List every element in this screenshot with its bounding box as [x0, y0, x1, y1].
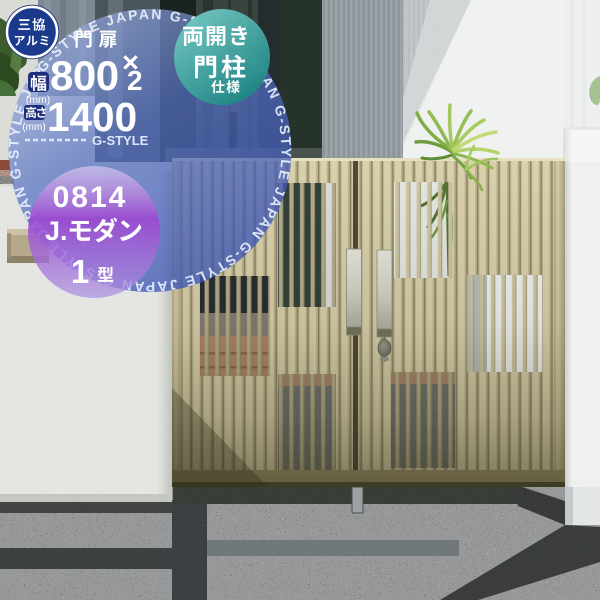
svg-text:800: 800 — [50, 52, 119, 99]
svg-text:J.: J. — [45, 216, 68, 246]
svg-text:(mm): (mm) — [22, 122, 45, 133]
svg-text:1: 1 — [71, 253, 89, 290]
svg-text:0814: 0814 — [53, 181, 128, 214]
svg-text:G-STYLE: G-STYLE — [92, 133, 149, 148]
svg-text:2: 2 — [127, 65, 143, 96]
